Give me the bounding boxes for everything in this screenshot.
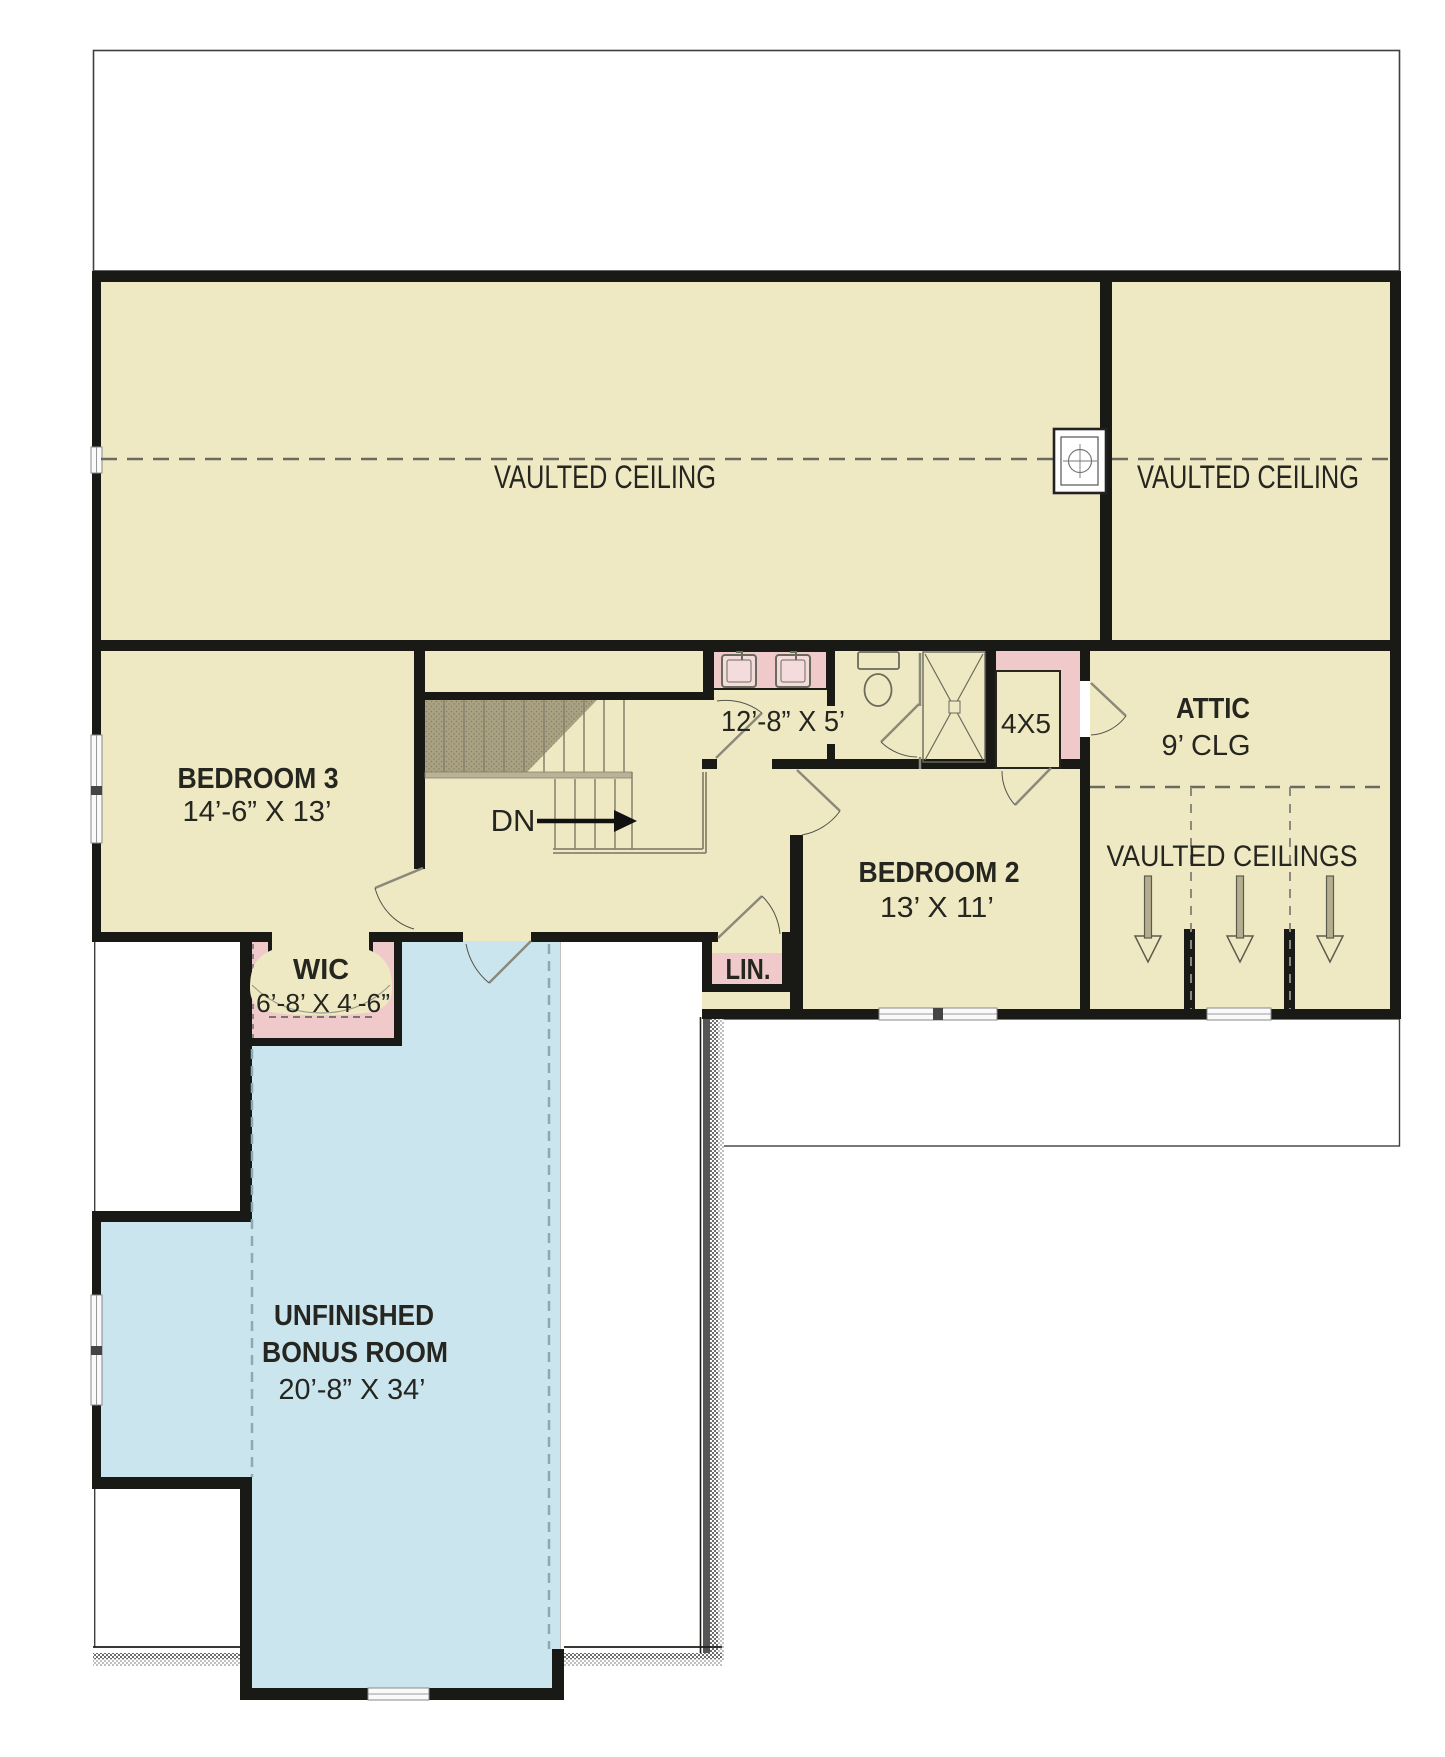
svg-text:WIC: WIC (293, 954, 349, 986)
svg-text:14’-6” X 13’: 14’-6” X 13’ (183, 796, 332, 828)
svg-text:6’-8’ X 4’-6”: 6’-8’ X 4’-6” (256, 988, 390, 1018)
svg-text:VAULTED CEILINGS: VAULTED CEILINGS (1107, 840, 1358, 873)
svg-text:BONUS ROOM: BONUS ROOM (262, 1337, 448, 1369)
svg-text:13’ X 11’: 13’ X 11’ (880, 892, 994, 924)
svg-text:LIN.: LIN. (726, 954, 771, 986)
svg-text:DN: DN (491, 803, 536, 838)
svg-text:BEDROOM 2: BEDROOM 2 (859, 857, 1020, 889)
svg-text:BEDROOM 3: BEDROOM 3 (178, 763, 339, 795)
svg-text:12’-8” X 5’: 12’-8” X 5’ (721, 706, 845, 738)
svg-text:ATTIC: ATTIC (1176, 693, 1250, 725)
svg-text:4X5: 4X5 (1001, 708, 1051, 739)
svg-text:9’ CLG: 9’ CLG (1162, 730, 1251, 762)
svg-text:UNFINISHED: UNFINISHED (274, 1300, 434, 1332)
svg-text:VAULTED CEILING: VAULTED CEILING (1137, 459, 1359, 495)
svg-text:VAULTED CEILING: VAULTED CEILING (494, 459, 716, 495)
svg-text:20’-8” X 34’: 20’-8” X 34’ (279, 1374, 426, 1406)
